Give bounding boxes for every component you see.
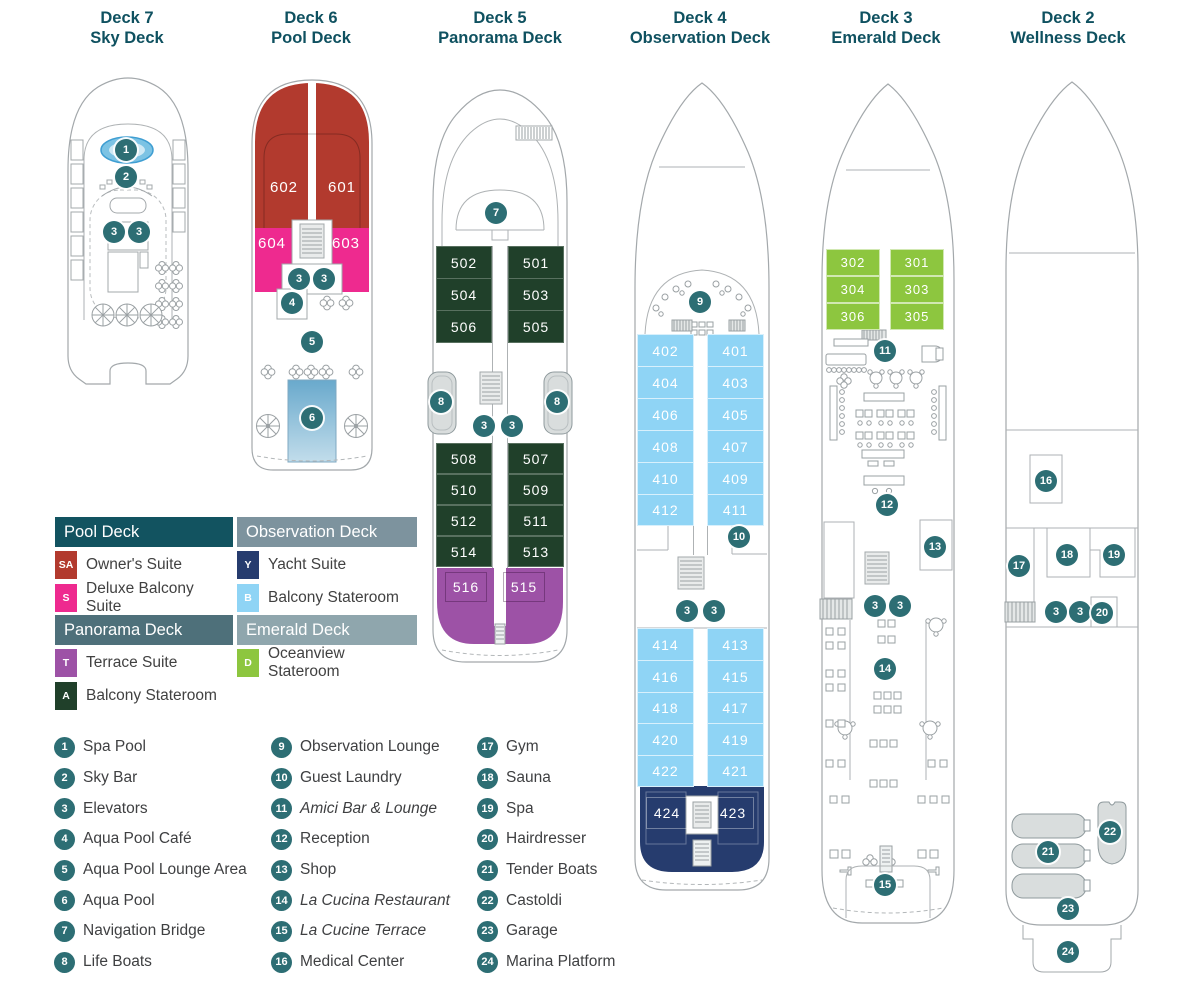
location-label: Hairdresser [506, 830, 586, 848]
location-la-cucina-restaurant: 14La Cucina Restaurant [271, 885, 450, 916]
deck2-outline-drawing [1002, 78, 1142, 978]
cabin-604: 604 [250, 228, 294, 258]
marker-elevator-d6-right: 3 [313, 268, 335, 290]
cabin-504: 504 [436, 278, 492, 311]
marker-spa-pool: 1 [115, 139, 137, 161]
location-gym: 17Gym [477, 732, 615, 763]
location-life-boats: 8Life Boats [54, 947, 247, 978]
location-garage: 23Garage [477, 916, 615, 947]
cabin-301: 301 [890, 249, 944, 276]
cabin-513: 513 [508, 536, 564, 567]
marker-sky-bar: 2 [115, 166, 137, 188]
cabin-415: 415 [707, 660, 764, 693]
marker-elevator-d2-left: 3 [1045, 601, 1067, 623]
location-label: Sauna [506, 769, 551, 787]
location-num: 14 [271, 890, 292, 911]
chip-yacht-suite: Y [237, 551, 259, 579]
deck5-title: Deck 5 [410, 8, 590, 28]
deck5-header: Deck 5 Panorama Deck [410, 8, 590, 48]
location-navigation-bridge: 7Navigation Bridge [54, 916, 247, 947]
location-spa-pool: 1Spa Pool [54, 732, 247, 763]
cabin-603: 603 [324, 228, 368, 258]
marker-elevator-d7-right: 3 [128, 221, 150, 243]
location-num: 24 [477, 952, 498, 973]
location-label: Aqua Pool [83, 892, 155, 910]
location-label: Life Boats [83, 953, 152, 971]
marker-tender-boats: 21 [1037, 841, 1059, 863]
marker-life-boats-left: 8 [430, 391, 452, 413]
deck4-subtitle: Observation Deck [610, 28, 790, 48]
cabin-423: 423 [712, 797, 754, 829]
cabin-509: 509 [508, 474, 564, 505]
location-label: Spa [506, 800, 534, 818]
location-aqua-pool-cafe: 4Aqua Pool Café [54, 824, 247, 855]
location-num: 23 [477, 921, 498, 942]
cabin-413: 413 [707, 628, 764, 661]
location-label: Castoldi [506, 892, 562, 910]
cabin-416: 416 [637, 660, 694, 693]
location-num: 22 [477, 890, 498, 911]
location-label: Shop [300, 861, 336, 879]
cabin-414: 414 [637, 628, 694, 661]
label-yacht-suite: Yacht Suite [268, 556, 346, 574]
cabin-602: 602 [259, 172, 309, 202]
marker-shop: 13 [924, 536, 946, 558]
location-sky-bar: 2Sky Bar [54, 763, 247, 794]
suite-legend-left-column: Pool Deck SA Owner's Suite S Deluxe Balc… [55, 517, 233, 712]
cabin-510: 510 [436, 474, 492, 505]
cabin-420: 420 [637, 723, 694, 756]
locations-column-2: 9Observation Lounge 10Guest Laundry 11Am… [271, 732, 450, 978]
cabin-306: 306 [826, 303, 880, 330]
deck4-header: Deck 4 Observation Deck [610, 8, 790, 48]
cabin-304: 304 [826, 276, 880, 303]
location-num: 21 [477, 860, 498, 881]
location-label: Garage [506, 922, 558, 940]
location-reception: 12Reception [271, 824, 450, 855]
marker-elevator-d5-right: 3 [501, 415, 523, 437]
location-num: 20 [477, 829, 498, 850]
location-num: 12 [271, 829, 292, 850]
marker-medical-center: 16 [1035, 470, 1057, 492]
deck7-title: Deck 7 [37, 8, 217, 28]
cabin-303: 303 [890, 276, 944, 303]
location-num: 3 [54, 798, 75, 819]
label-owners-suite: Owner's Suite [86, 556, 182, 574]
label-balcony-stateroom-a: Balcony Stateroom [86, 687, 217, 705]
cabin-421: 421 [707, 755, 764, 787]
locations-column-3: 17Gym 18Sauna 19Spa 20Hairdresser 21Tend… [477, 732, 615, 978]
location-num: 19 [477, 798, 498, 819]
location-label: Navigation Bridge [83, 922, 205, 940]
location-num: 8 [54, 952, 75, 973]
location-label: Tender Boats [506, 861, 597, 879]
location-guest-laundry: 10Guest Laundry [271, 763, 450, 794]
location-label: Aqua Pool Café [83, 830, 192, 848]
locations-column-1: 1Spa Pool 2Sky Bar 3Elevators 4Aqua Pool… [54, 732, 247, 978]
marker-aqua-pool-lounge: 5 [301, 331, 323, 353]
suite-legend-right-column: Observation Deck Y Yacht Suite B Balcony… [237, 517, 417, 679]
marker-gym: 17 [1008, 555, 1030, 577]
location-num: 7 [54, 921, 75, 942]
location-hairdresser: 20Hairdresser [477, 824, 615, 855]
marker-aqua-pool: 6 [301, 407, 323, 429]
location-amici-bar-lounge: 11Amici Bar & Lounge [271, 793, 450, 824]
location-label: Amici Bar & Lounge [300, 800, 437, 818]
legend-header-panorama-deck: Panorama Deck [55, 615, 233, 645]
location-label: Reception [300, 830, 370, 848]
location-num: 4 [54, 829, 75, 850]
marker-reception: 12 [876, 494, 898, 516]
marker-elevator-d2-right: 3 [1069, 601, 1091, 623]
location-sauna: 18Sauna [477, 763, 615, 794]
deck3-title: Deck 3 [796, 8, 976, 28]
location-num: 16 [271, 952, 292, 973]
location-elevators: 3Elevators [54, 793, 247, 824]
deck6-subtitle: Pool Deck [221, 28, 401, 48]
cabin-409: 409 [707, 462, 764, 495]
legend-header-emerald-deck: Emerald Deck [237, 615, 417, 645]
marker-elevator-d4-left: 3 [676, 600, 698, 622]
chip-terrace-suite: T [55, 649, 77, 677]
marker-observation-lounge: 9 [689, 291, 711, 313]
deck2-subtitle: Wellness Deck [978, 28, 1158, 48]
cabin-402: 402 [637, 334, 694, 367]
location-num: 1 [54, 737, 75, 758]
legend-item-oceanview-stateroom: D Oceanview Stateroom [237, 647, 417, 679]
cabin-506: 506 [436, 310, 492, 343]
deck5-subtitle: Panorama Deck [410, 28, 590, 48]
legend-header-pool-deck: Pool Deck [55, 517, 233, 547]
marker-sauna: 18 [1056, 544, 1078, 566]
deck7-subtitle: Sky Deck [37, 28, 217, 48]
cabin-406: 406 [637, 398, 694, 431]
marker-elevator-d5-left: 3 [473, 415, 495, 437]
location-num: 10 [271, 768, 292, 789]
cabin-419: 419 [707, 723, 764, 756]
location-la-cucine-terrace: 15La Cucine Terrace [271, 916, 450, 947]
legend-item-terrace-suite: T Terrace Suite [55, 647, 233, 679]
deck2-plan [1002, 78, 1142, 978]
label-deluxe-balcony-suite: Deluxe Balcony Suite [86, 580, 233, 616]
chip-deluxe-balcony-suite: S [55, 584, 77, 612]
location-observation-lounge: 9Observation Lounge [271, 732, 450, 763]
marker-life-boats-right: 8 [546, 391, 568, 413]
cabin-503: 503 [508, 278, 564, 311]
cabin-601: 601 [317, 172, 367, 202]
location-spa: 19Spa [477, 793, 615, 824]
location-num: 5 [54, 860, 75, 881]
location-tender-boats: 21Tender Boats [477, 855, 615, 886]
chip-oceanview-stateroom: D [237, 649, 259, 677]
marker-elevator-d6-left: 3 [288, 268, 310, 290]
cabin-512: 512 [436, 505, 492, 536]
cabin-305: 305 [890, 303, 944, 330]
deck3-subtitle: Emerald Deck [796, 28, 976, 48]
cabin-511: 511 [508, 505, 564, 536]
deck-plan-canvas: Deck 7 Sky Deck Deck 6 Pool Deck Deck 5 … [0, 0, 1200, 995]
chip-balcony-stateroom-b: B [237, 584, 259, 612]
marker-castoldi: 22 [1099, 821, 1121, 843]
deck7-header: Deck 7 Sky Deck [37, 8, 217, 48]
cabin-501: 501 [508, 246, 564, 279]
deck2-title: Deck 2 [978, 8, 1158, 28]
location-label: La Cucina Restaurant [300, 892, 450, 910]
cabin-507: 507 [508, 443, 564, 474]
location-num: 11 [271, 798, 292, 819]
cabin-401: 401 [707, 334, 764, 367]
deck4-title: Deck 4 [610, 8, 790, 28]
marker-hairdresser: 20 [1091, 602, 1113, 624]
location-label: Sky Bar [83, 769, 137, 787]
marker-guest-laundry: 10 [728, 526, 750, 548]
marker-elevator-d3-right: 3 [889, 595, 911, 617]
legend-item-balcony-stateroom-a: A Balcony Stateroom [55, 680, 233, 712]
cabin-410: 410 [637, 462, 694, 495]
location-label: Spa Pool [83, 738, 146, 756]
location-num: 17 [477, 737, 498, 758]
cabin-403: 403 [707, 366, 764, 399]
cabin-516: 516 [445, 572, 487, 602]
cabin-302: 302 [826, 249, 880, 276]
deck6-header: Deck 6 Pool Deck [221, 8, 401, 48]
label-terrace-suite: Terrace Suite [86, 654, 177, 672]
chip-balcony-stateroom-a: A [55, 682, 77, 710]
cabin-411: 411 [707, 494, 764, 526]
cabin-514: 514 [436, 536, 492, 567]
marker-la-cucine-terrace: 15 [874, 874, 896, 896]
label-oceanview-stateroom: Oceanview Stateroom [268, 645, 417, 681]
cabin-515: 515 [503, 572, 545, 602]
marker-amici-bar-lounge: 11 [874, 340, 896, 362]
location-label: Gym [506, 738, 539, 756]
location-aqua-pool-lounge-area: 5Aqua Pool Lounge Area [54, 855, 247, 886]
cabin-505: 505 [508, 310, 564, 343]
marker-aqua-pool-cafe: 4 [281, 292, 303, 314]
location-medical-center: 16Medical Center [271, 947, 450, 978]
cabin-418: 418 [637, 692, 694, 724]
marker-navigation-bridge: 7 [485, 202, 507, 224]
marker-garage: 23 [1057, 898, 1079, 920]
location-shop: 13Shop [271, 855, 450, 886]
cabin-417: 417 [707, 692, 764, 724]
legend-item-balcony-stateroom-b: B Balcony Stateroom [237, 582, 417, 614]
marker-elevator-d4-right: 3 [703, 600, 725, 622]
location-aqua-pool: 6Aqua Pool [54, 885, 247, 916]
location-num: 13 [271, 860, 292, 881]
marker-elevator-d7-left: 3 [103, 221, 125, 243]
marker-la-cucina-restaurant: 14 [874, 658, 896, 680]
location-label: Observation Lounge [300, 738, 440, 756]
location-label: La Cucine Terrace [300, 922, 426, 940]
location-num: 2 [54, 768, 75, 789]
cabin-422: 422 [637, 755, 694, 787]
legend-item-owners-suite: SA Owner's Suite [55, 549, 233, 581]
marker-marina-platform: 24 [1057, 941, 1079, 963]
cabin-405: 405 [707, 398, 764, 431]
legend-header-observation-deck: Observation Deck [237, 517, 417, 547]
cabin-508: 508 [436, 443, 492, 474]
legend-item-deluxe-balcony-suite: S Deluxe Balcony Suite [55, 582, 233, 614]
location-num: 6 [54, 890, 75, 911]
deck3-header: Deck 3 Emerald Deck [796, 8, 976, 48]
cabin-408: 408 [637, 430, 694, 463]
cabin-502: 502 [436, 246, 492, 279]
deck2-header: Deck 2 Wellness Deck [978, 8, 1158, 48]
cabin-404: 404 [637, 366, 694, 399]
location-num: 9 [271, 737, 292, 758]
location-label: Guest Laundry [300, 769, 402, 787]
deck6-title: Deck 6 [221, 8, 401, 28]
location-label: Marina Platform [506, 953, 615, 971]
marker-elevator-d3-left: 3 [864, 595, 886, 617]
location-label: Medical Center [300, 953, 404, 971]
legend-item-yacht-suite: Y Yacht Suite [237, 549, 417, 581]
cabin-412: 412 [637, 494, 694, 526]
cabin-424: 424 [646, 797, 688, 829]
cabin-407: 407 [707, 430, 764, 463]
marker-spa: 19 [1103, 544, 1125, 566]
location-castoldi: 22Castoldi [477, 885, 615, 916]
location-marina-platform: 24Marina Platform [477, 947, 615, 978]
location-label: Aqua Pool Lounge Area [83, 861, 247, 879]
location-num: 18 [477, 768, 498, 789]
location-label: Elevators [83, 800, 148, 818]
label-balcony-stateroom-b: Balcony Stateroom [268, 589, 399, 607]
chip-owners-suite: SA [55, 551, 77, 579]
location-num: 15 [271, 921, 292, 942]
